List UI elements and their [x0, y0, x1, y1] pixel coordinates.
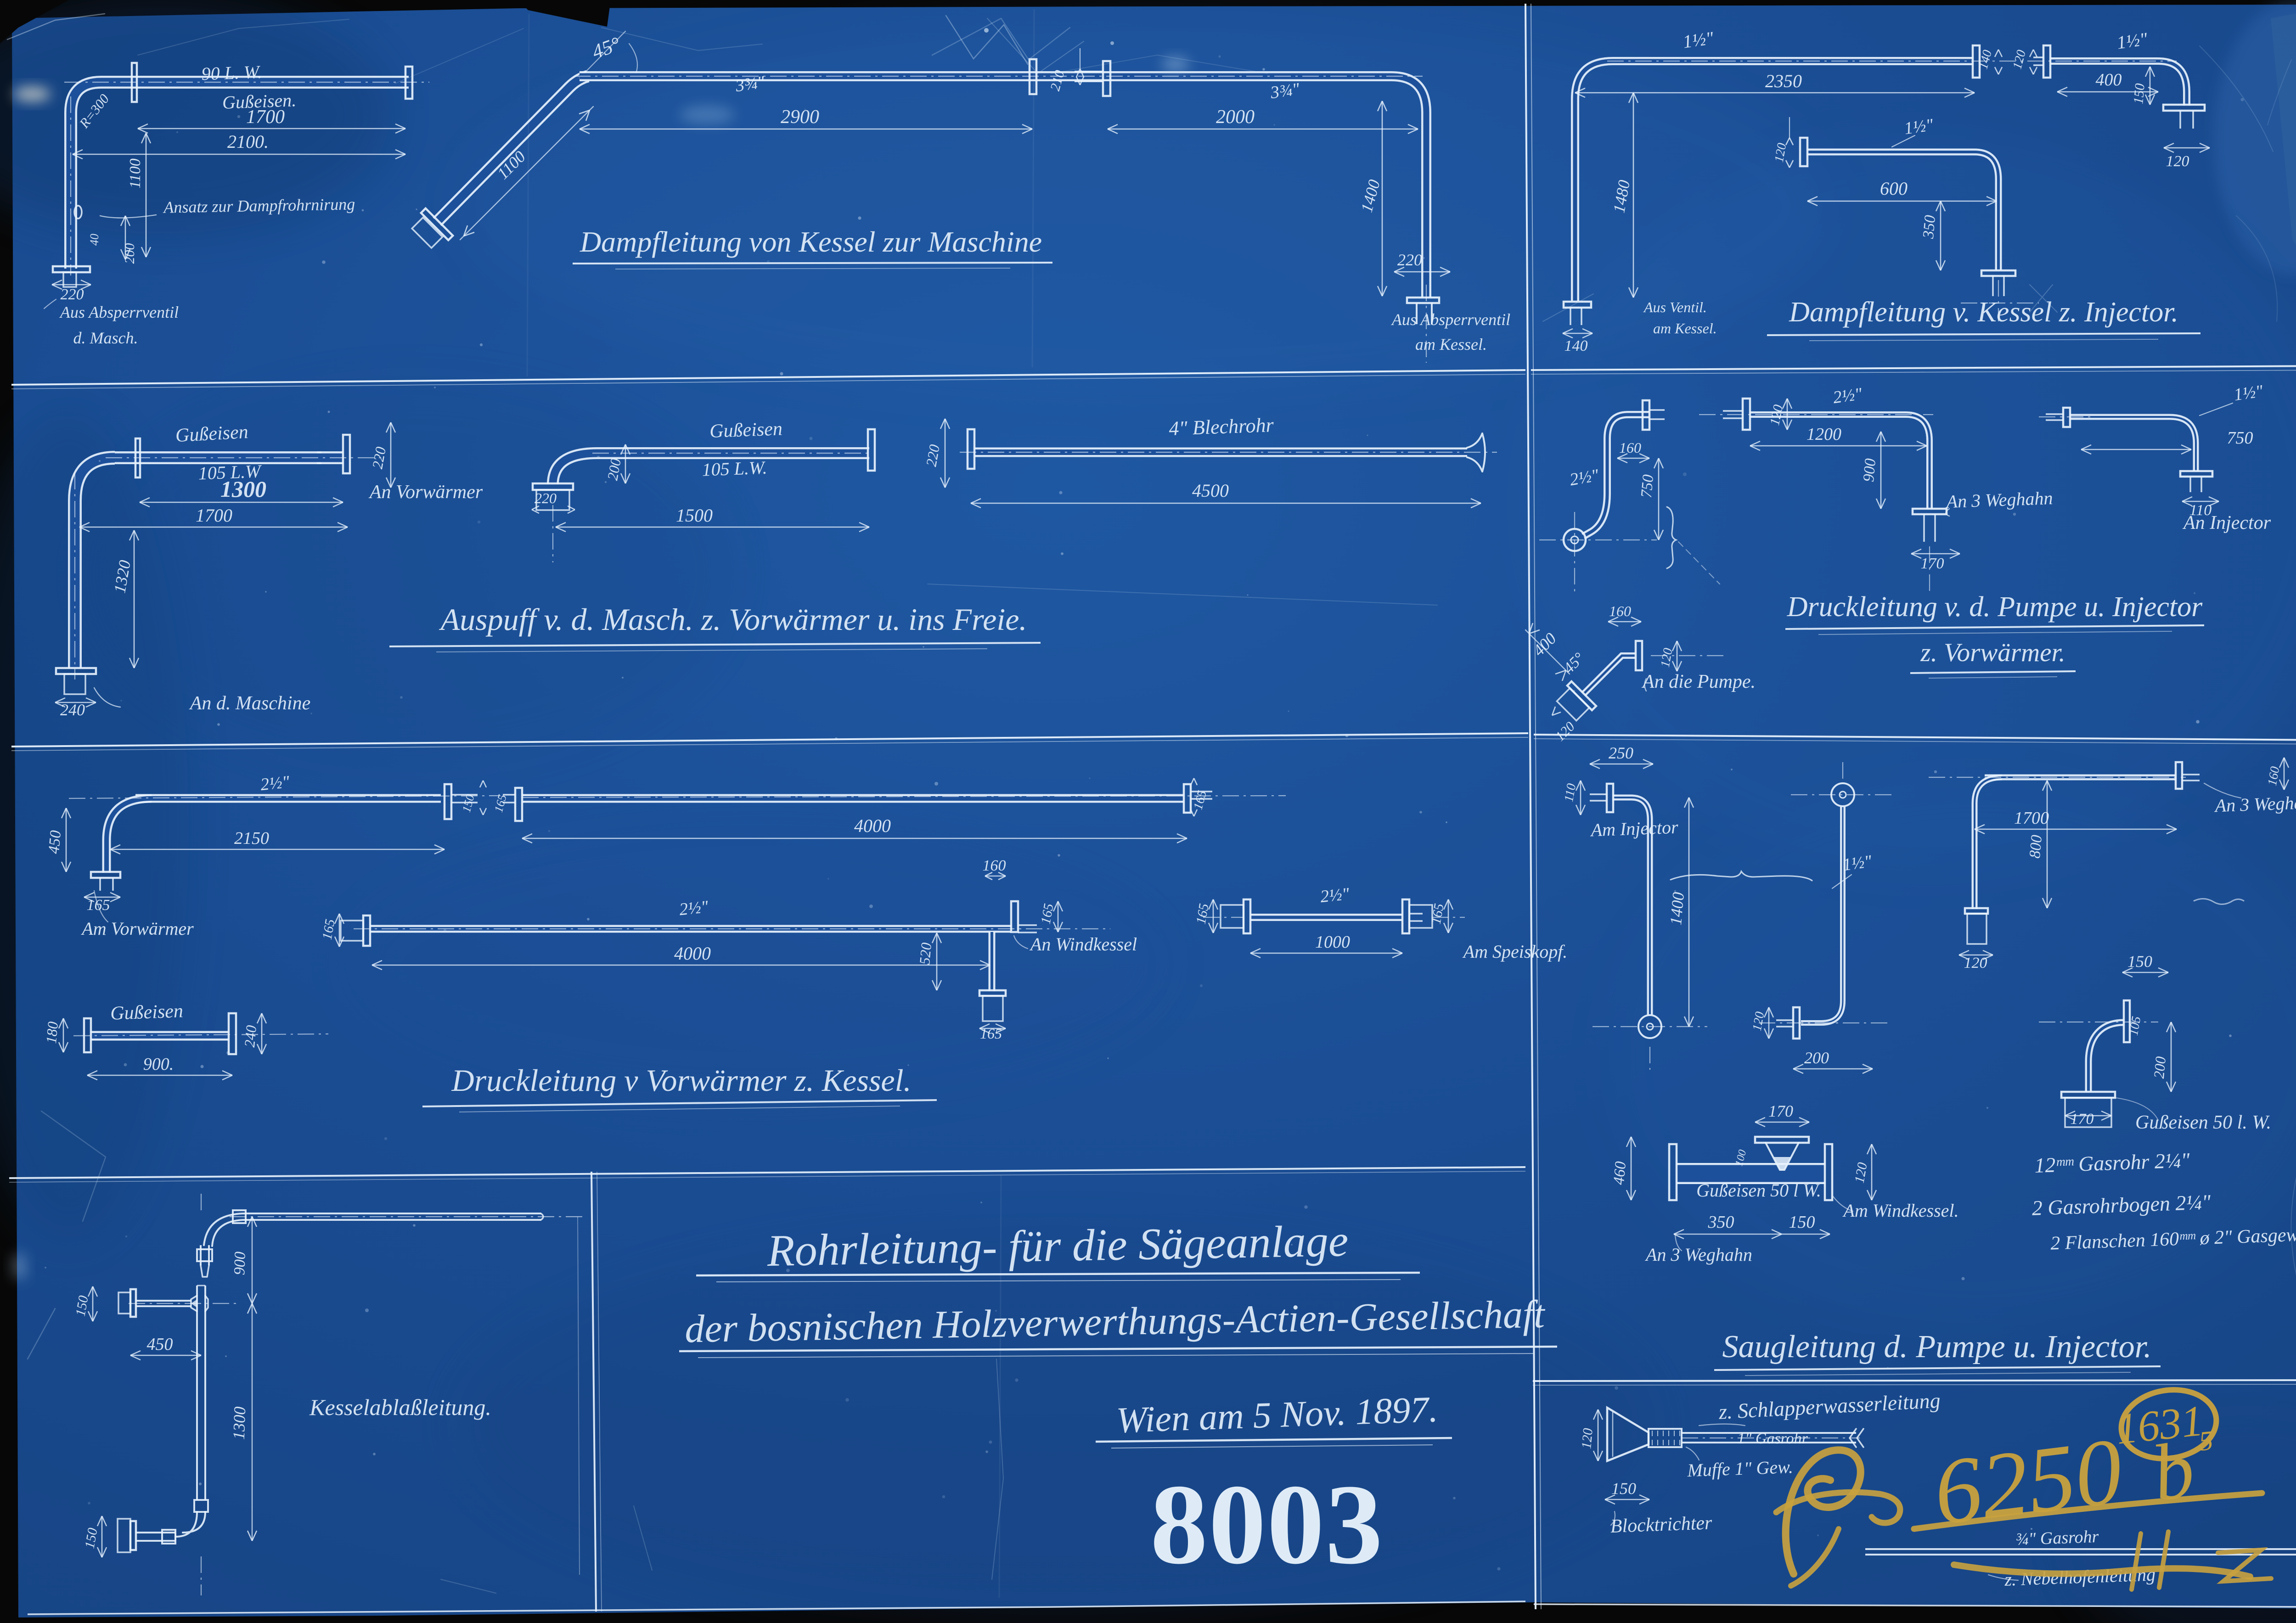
svg-text:1100: 1100	[127, 158, 144, 188]
svg-text:Am Windkessel.: Am Windkessel.	[1842, 1200, 1958, 1221]
svg-text:1½": 1½"	[1841, 852, 1874, 875]
svg-text:170: 170	[1921, 555, 1944, 572]
svg-text:350: 350	[1920, 214, 1939, 240]
svg-text:220: 220	[61, 286, 84, 303]
svg-text:200: 200	[2150, 1056, 2169, 1079]
svg-text:Am Injector: Am Injector	[1589, 817, 1679, 841]
svg-text:900: 900	[1860, 458, 1879, 483]
svg-text:150: 150	[2131, 83, 2148, 105]
svg-text:An die Pumpe.: An die Pumpe.	[1641, 671, 1756, 692]
svg-text:2½": 2½"	[259, 772, 291, 795]
svg-text:450: 450	[147, 1335, 173, 1354]
svg-text:165: 165	[980, 1025, 1002, 1042]
svg-text:900.: 900.	[143, 1055, 174, 1074]
svg-text:1700: 1700	[2014, 809, 2049, 828]
svg-text:160: 160	[1609, 603, 1631, 619]
svg-text:105 L.W.: 105 L.W.	[702, 457, 767, 480]
svg-text:1700: 1700	[196, 505, 232, 526]
svg-text:Saugleitung d. Pumpe u. Inject: Saugleitung d. Pumpe u. Injector.	[1722, 1329, 2151, 1365]
svg-text:2½": 2½"	[678, 897, 710, 920]
svg-text:1300: 1300	[230, 1406, 249, 1440]
svg-text:Auspuff v. d. Masch. z. Vorwär: Auspuff v. d. Masch. z. Vorwärmer u. ins…	[439, 602, 1027, 637]
svg-text:Druckleitung v Vorwärmer z. Ke: Druckleitung v Vorwärmer z. Kessel.	[451, 1063, 911, 1098]
svg-text:d. Masch.: d. Masch.	[73, 329, 138, 347]
svg-text:900: 900	[231, 1252, 249, 1275]
svg-text:180: 180	[43, 1021, 61, 1045]
svg-text:4000: 4000	[854, 815, 891, 836]
svg-text:4500: 4500	[1192, 480, 1229, 501]
svg-text:170: 170	[1768, 1102, 1793, 1120]
svg-text:am Kessel.: am Kessel.	[1415, 335, 1487, 354]
svg-text:2½": 2½"	[1832, 384, 1864, 408]
svg-text:120: 120	[1964, 955, 1987, 972]
svg-text:120: 120	[1579, 1427, 1596, 1449]
svg-text:2900: 2900	[781, 107, 819, 128]
svg-text:120: 120	[2166, 153, 2189, 170]
svg-text:220: 220	[1397, 251, 1422, 269]
svg-text:200: 200	[122, 243, 137, 264]
svg-text:Gußeisen: Gußeisen	[709, 418, 782, 442]
svg-text:460: 460	[1610, 1161, 1629, 1185]
svg-text:1400: 1400	[1666, 891, 1688, 926]
svg-text:Kesselablaßleitung.: Kesselablaßleitung.	[309, 1394, 491, 1420]
svg-text:1½": 1½"	[1903, 115, 1935, 139]
svg-text:400: 400	[2096, 70, 2122, 90]
svg-text:150: 150	[1611, 1479, 1636, 1498]
svg-text:Blocktrichter: Blocktrichter	[1610, 1512, 1713, 1537]
svg-text:Gußeisen: Gußeisen	[110, 1000, 183, 1024]
svg-text:4000: 4000	[674, 943, 711, 964]
svg-text:Gußeisen: Gußeisen	[175, 421, 249, 446]
svg-text:240: 240	[60, 701, 85, 719]
svg-text:Dampfleitung v. Kessel z. Inje: Dampfleitung v. Kessel z. Injector.	[1789, 297, 2178, 328]
svg-text:An 3 Weghahn.: An 3 Weghahn.	[2213, 792, 2296, 816]
svg-text:Druckleitung v. d. Pumpe u. In: Druckleitung v. d. Pumpe u. Injector	[1787, 591, 2203, 623]
svg-text:2350: 2350	[1765, 71, 1802, 91]
svg-text:600: 600	[1880, 178, 1908, 199]
svg-text:2100.: 2100.	[227, 131, 269, 152]
svg-text:1" Gasrohr: 1" Gasrohr	[1737, 1430, 1808, 1447]
svg-text:40: 40	[88, 234, 101, 246]
svg-text:2150: 2150	[234, 829, 269, 848]
svg-text:160: 160	[983, 857, 1006, 874]
svg-text:Rohrleitung- für die Sägeanlag: Rohrleitung- für die Sägeanlage	[766, 1216, 1349, 1276]
svg-text:Aus Ventil.: Aus Ventil.	[1643, 299, 1707, 315]
svg-text:1200: 1200	[1806, 425, 1841, 444]
svg-text:1½": 1½"	[2116, 28, 2149, 53]
svg-text:Dampfleitung von Kessel zur Ma: Dampfleitung von Kessel zur Maschine	[580, 225, 1042, 258]
svg-text:2000: 2000	[1216, 107, 1255, 128]
svg-text:520: 520	[916, 942, 934, 966]
svg-text:1700: 1700	[246, 107, 285, 128]
svg-text:1500: 1500	[676, 505, 713, 526]
svg-text:250: 250	[1609, 744, 1633, 762]
svg-text:220: 220	[535, 490, 557, 506]
svg-text:Gußeisen 50 l. W.: Gußeisen 50 l. W.	[2135, 1112, 2271, 1133]
svg-text:160: 160	[1619, 439, 1641, 456]
svg-text:Aus Absperrventil: Aus Absperrventil	[59, 303, 179, 321]
svg-text:750: 750	[2227, 428, 2253, 448]
svg-text:800: 800	[2026, 834, 2045, 859]
svg-text:An Vorwärmer: An Vorwärmer	[368, 482, 483, 503]
svg-text:150: 150	[1789, 1213, 1815, 1232]
svg-text:An 3 Weghahn: An 3 Weghahn	[1945, 488, 2053, 512]
svg-text:140: 140	[1564, 337, 1588, 354]
svg-text:2½": 2½"	[1319, 884, 1351, 907]
svg-text:An d. Maschine: An d. Maschine	[189, 693, 310, 714]
svg-text:Am Speiskopf.: Am Speiskopf.	[1462, 941, 1568, 962]
svg-text:Ansatz zur Dampfrohrnirung: Ansatz zur Dampfrohrnirung	[163, 195, 355, 216]
svg-text:1½": 1½"	[1682, 28, 1715, 52]
svg-text:4" Blechrohr: 4" Blechrohr	[1169, 414, 1275, 440]
svg-text:am Kessel.: am Kessel.	[1653, 320, 1717, 337]
svg-text:1000: 1000	[1315, 932, 1350, 952]
svg-text:750: 750	[1638, 474, 1657, 499]
svg-text:Muffe 1" Gew.: Muffe 1" Gew.	[1687, 1456, 1794, 1481]
svg-text:450: 450	[45, 830, 64, 854]
svg-text:1300: 1300	[220, 476, 266, 502]
svg-text:8003: 8003	[1150, 1461, 1384, 1588]
svg-text:An 3 Weghahn: An 3 Weghahn	[1644, 1244, 1752, 1265]
svg-text:90 L. W.: 90 L. W.	[201, 62, 262, 84]
svg-text:Am Vorwärmer: Am Vorwärmer	[80, 918, 194, 939]
svg-text:Gußeisen 50 l W.: Gußeisen 50 l W.	[1696, 1180, 1821, 1201]
svg-text:200: 200	[1804, 1049, 1829, 1067]
svg-text:z. Vorwärmer.: z. Vorwärmer.	[1920, 638, 2065, 667]
svg-text:Aus Absperrventil: Aus Absperrventil	[1391, 310, 1510, 329]
svg-text:An Windkessel: An Windkessel	[1029, 934, 1137, 955]
svg-text:1½": 1½"	[2233, 382, 2265, 405]
svg-text:350: 350	[1708, 1213, 1734, 1232]
svg-text:An Injector: An Injector	[2182, 512, 2271, 534]
